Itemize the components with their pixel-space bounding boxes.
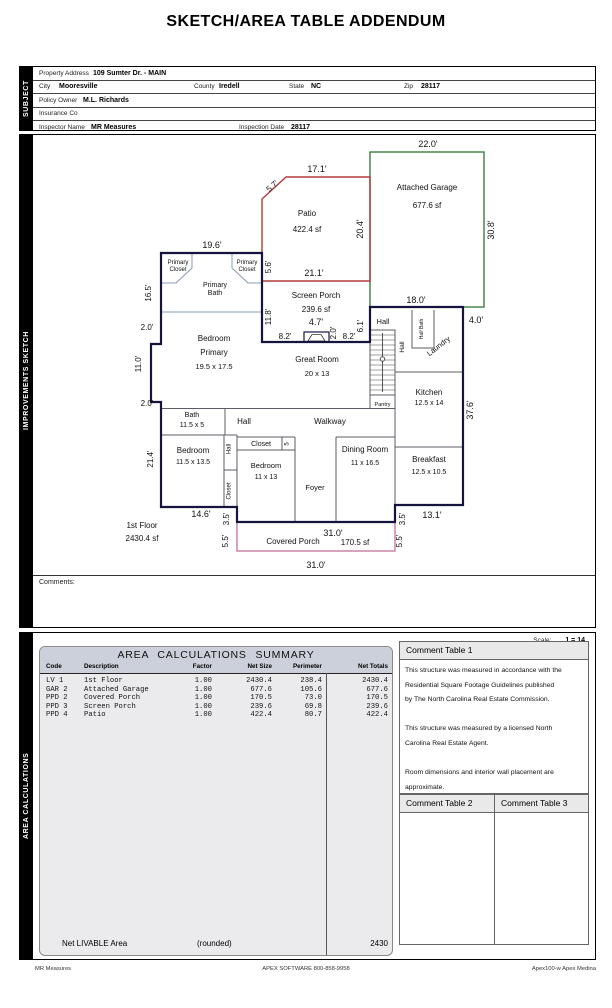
subject-tab: SUBJECT — [20, 67, 33, 130]
sketch-label: 31.0' — [306, 560, 326, 570]
field-value: Iredell — [219, 83, 240, 90]
sketch-label: 4.7' — [309, 317, 324, 327]
sketch-label: 5 — [285, 442, 291, 446]
area-calculations-tab: AREA CALCULATIONS — [20, 633, 33, 959]
sketch-label: 4.0' — [469, 315, 484, 325]
sketch-label: 677.6 sf — [413, 201, 442, 210]
sketch-label: 170.5 sf — [341, 538, 370, 547]
comments-area: Comments: — [33, 575, 595, 626]
sketch-label: 11 x 13 — [255, 474, 278, 481]
table-cell-net_totals: 422.4 — [40, 711, 388, 719]
summary-header: AREA CALCULATIONS SUMMARY CodeDescriptio… — [40, 647, 392, 673]
sketch-label: Closet — [238, 267, 255, 273]
sketch-label: Patio — [298, 209, 317, 218]
field-value: M.L. Richards — [83, 97, 129, 104]
field-label: Inspection Date — [239, 124, 284, 131]
sketch-label: Closet — [169, 267, 186, 273]
comment-line: Room dimensions and interior wall placem… — [400, 766, 588, 781]
table-row: PPD 3Screen Porch1.00239.669.8239.6 — [40, 703, 392, 712]
sketch-label: 20 x 13 — [305, 369, 330, 378]
sketch-label: 8.2' — [279, 332, 292, 341]
field-label: Property Address — [39, 70, 89, 77]
summary-header-rule — [40, 673, 392, 674]
sketch-label: Primary — [168, 260, 189, 266]
sketch-label: Laundry — [425, 334, 452, 358]
sketch-label: 5.5' — [221, 534, 230, 547]
comment-table-2: Comment Table 2 — [399, 794, 495, 945]
field-value: NC — [311, 83, 321, 90]
sketch-label: 11.0' — [134, 355, 143, 372]
comment-table-2-title: Comment Table 2 — [400, 795, 494, 813]
sketch-label: Kitchen — [416, 388, 443, 397]
sketch-label: 3.5' — [222, 512, 231, 525]
improvements-sketch-tab: IMPROVEMENTS SKETCH — [20, 135, 33, 627]
sketch-label: 17.1' — [307, 164, 327, 174]
sketch-label: Closet — [251, 441, 271, 448]
table-row: PPD 4Patio1.00422.480.7422.4 — [40, 711, 392, 720]
sketch-label: Hall — [237, 417, 251, 426]
table-cell-net_totals: 2430.4 — [40, 677, 388, 685]
field-value: 28117 — [421, 83, 440, 90]
sketch-label: Breakfast — [412, 455, 447, 464]
comment-table-3: Comment Table 3 — [494, 794, 589, 945]
sketch-label: Dining Room — [342, 445, 389, 454]
sketch-label: 31.0' — [323, 528, 343, 538]
sketch-label: 8.2' — [343, 332, 356, 341]
comment-line — [400, 708, 588, 723]
field-label: Inspector Name — [39, 124, 85, 131]
sketch-label: Closet — [227, 482, 233, 499]
field-label: County — [194, 83, 215, 90]
garage-outline — [370, 152, 484, 307]
footer-right: Apex100-w Apex Medina — [532, 966, 596, 972]
field-label: City — [39, 83, 50, 90]
sketch-label: 21.4' — [146, 450, 155, 468]
sketch-label: 422.4 sf — [293, 225, 322, 234]
subject-row: CityMooresvilleCountyIredellStateNCZip28… — [33, 81, 595, 95]
subject-row: Inspector NameMR MeasuresInspection Date… — [33, 121, 595, 134]
comments-label: Comments: — [39, 579, 75, 586]
sketch-label: 12.5 x 14 — [415, 400, 444, 407]
staircase — [370, 333, 395, 392]
table-row: LV 11st Floor1.002430.4238.42430.4 — [40, 677, 392, 686]
comment-table-1: Comment Table 1 This structure was measu… — [399, 641, 589, 794]
sketch-label: Hall — [377, 317, 390, 326]
comment-table-3-title: Comment Table 3 — [495, 795, 588, 813]
sketch-label: 11 x 16.5 — [351, 460, 379, 467]
field-value: Mooresville — [59, 83, 98, 90]
comment-line: This structure was measured in accordanc… — [400, 664, 588, 679]
comment-table-1-title: Comment Table 1 — [400, 642, 588, 660]
page-title: SKETCH/AREA TABLE ADDENDUM — [0, 13, 612, 31]
summary-title: AREA CALCULATIONS SUMMARY — [40, 647, 392, 661]
subject-section: SUBJECT Property Address109 Sumter Dr. -… — [19, 66, 596, 131]
field-label: Insurance Co — [39, 110, 78, 117]
sketch-label: 19.5 x 17.5 — [195, 362, 232, 371]
table-cell-net_totals: 239.6 — [40, 703, 388, 711]
sketch-label: 13.1' — [422, 510, 442, 520]
improvements-sketch-section: IMPROVEMENTS SKETCH — [19, 134, 596, 628]
sketch-label: Primary — [203, 282, 228, 289]
subject-form: Property Address109 Sumter Dr. - MAINCit… — [33, 67, 595, 134]
fireplace — [304, 332, 329, 342]
field-value: 109 Sumter Dr. - MAIN — [93, 70, 166, 77]
comment-line: Residential Square Footage Guidelines pu… — [400, 679, 588, 694]
sketch-label: 11.5 x 5 — [180, 422, 204, 429]
sketch-label: Primary — [237, 260, 258, 266]
comment-line: Carolina Real Estate Agent. — [400, 737, 588, 752]
table-cell-net_totals: 170.5 — [40, 694, 388, 702]
sketch-label: Bedroom — [198, 334, 231, 343]
subject-row: Insurance Co — [33, 108, 595, 122]
sketch-label: 2.0' — [141, 323, 154, 332]
sketch-label: 5.6' — [264, 260, 273, 273]
summary-totals-divider — [326, 673, 327, 955]
sketch-label: Pantry — [375, 402, 391, 408]
sketch-label: 1st Floor — [126, 521, 157, 530]
floorplan-sketch: 22.0'Attached Garage677.6 sf30.8'18.0'4.… — [33, 135, 597, 575]
field-value: 28117 — [291, 124, 310, 131]
column-header: Net Totals — [40, 663, 388, 670]
sketch-label: 19.6' — [202, 240, 222, 250]
sketch-label: 2.0' — [329, 326, 338, 339]
comment-table-1-body: This structure was measured in accordanc… — [400, 660, 588, 794]
sketch-label: Screen Porch — [292, 291, 340, 300]
sketch-label: Attached Garage — [397, 183, 458, 192]
sketch-label: Bedroom — [177, 446, 210, 455]
sketch-label: 30.8' — [486, 220, 496, 240]
sketch-label: 5.5' — [395, 534, 404, 547]
sketch-label: 239.6 sf — [302, 305, 331, 314]
area-calculations-section: AREA CALCULATIONS Scale:1 = 14 AREA CALC… — [19, 632, 596, 960]
sketch-label: 14.6' — [191, 509, 211, 519]
sketch-label: 16.5' — [144, 284, 153, 302]
sketch-label: Foyer — [305, 483, 325, 492]
area-summary-table: AREA CALCULATIONS SUMMARY CodeDescriptio… — [39, 646, 393, 956]
sketch-label: 18.0' — [406, 295, 426, 305]
comment-line: by The North Carolina Real Estate Commis… — [400, 693, 588, 708]
sketch-label: Great Room — [295, 355, 339, 364]
sketch-label: Bedroom — [251, 461, 281, 470]
comment-line — [400, 752, 588, 767]
subject-row: Property Address109 Sumter Dr. - MAIN — [33, 67, 595, 81]
sketch-label: 6.1' — [356, 319, 365, 332]
floorplan-svg: 22.0'Attached Garage677.6 sf30.8'18.0'4.… — [33, 135, 597, 575]
table-row: PPD 2Covered Porch1.00170.573.0170.5 — [40, 694, 392, 703]
subject-row: Policy OwnerM.L. Richards — [33, 94, 595, 108]
comment-line: This structure was measured by a license… — [400, 722, 588, 737]
sketch-label: Covered Porch — [266, 537, 319, 546]
sketch-label: Half Bath — [419, 319, 425, 340]
sketch-label: 3.5' — [398, 512, 407, 525]
field-label: Zip — [404, 83, 413, 90]
sketch-label: 11.5 x 13.5 — [176, 459, 210, 466]
sketch-label: 21.1' — [304, 268, 324, 278]
sketch-label: Primary — [200, 348, 228, 357]
sketch-label: 5.7' — [265, 178, 281, 193]
sketch-label: 20.4' — [355, 219, 365, 239]
page: SKETCH/AREA TABLE ADDENDUM SUBJECT Prope… — [0, 0, 612, 1008]
sketch-label: 22.0' — [418, 139, 438, 149]
sketch-label: 11.8' — [264, 308, 273, 325]
sketch-label: 12.5 x 10.5 — [412, 469, 447, 476]
net-livable-row: Net LIVABLE Area (rounded) 2430 — [40, 939, 392, 950]
sketch-label: 37.6' — [465, 400, 475, 420]
footer-center: APEX SOFTWARE 800-858-9958 — [0, 966, 612, 972]
comment-line: approximate. — [400, 781, 588, 794]
field-label: Policy Owner — [39, 97, 77, 104]
sketch-label: Walkway — [314, 417, 346, 426]
field-value: MR Measures — [91, 124, 136, 131]
sketch-label: Hall — [399, 341, 406, 353]
sketch-label: 2.0' — [141, 399, 154, 408]
sketch-label: Bath — [185, 412, 200, 419]
field-label: State — [289, 83, 304, 90]
sketch-label: Hall — [227, 444, 233, 454]
sketch-label: 2430.4 sf — [126, 534, 160, 543]
summary-rows: LV 11st Floor1.002430.4238.42430.4GAR 2A… — [40, 677, 392, 720]
sketch-label: Bath — [208, 290, 223, 297]
table-cell-net_totals: 677.6 — [40, 686, 388, 694]
net-livable-value: 2430 — [40, 939, 388, 948]
table-row: GAR 2Attached Garage1.00677.6105.6677.6 — [40, 686, 392, 695]
